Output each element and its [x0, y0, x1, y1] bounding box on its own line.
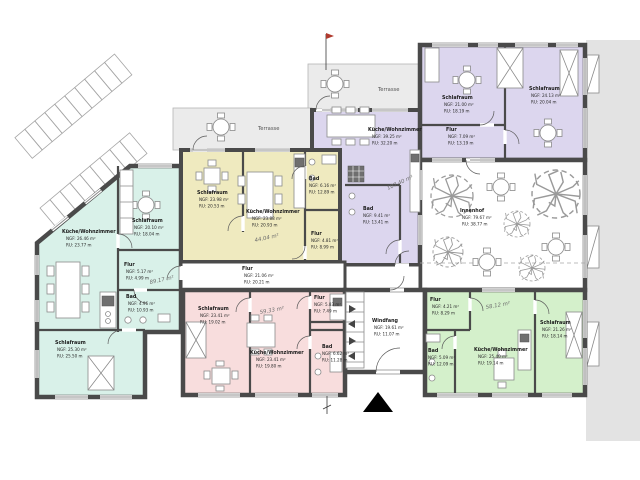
- green-kueche-ngf: NGF: 25.40 m²: [478, 354, 508, 359]
- yellow-bad-ru: RU: 12.89 m: [309, 190, 335, 195]
- green-schlafraum-ru: RU: 18.14 m: [542, 334, 568, 339]
- pink-flur-ru: RU: 7.49 m: [314, 309, 337, 314]
- green-flur-ru: RU: 8.29 m: [432, 311, 455, 316]
- lavender-kueche-ngf: NGF: 39.25 m²: [372, 134, 402, 139]
- lavender-schlafraum-links-ngf: NGF: 21.00 m²: [444, 102, 474, 107]
- mint-schlafraum-unten-ru: RU: 25.50 m: [57, 354, 83, 359]
- yellow-bad-name: Bad: [309, 176, 320, 182]
- yellow-schlafraum-ngf: NGF: 23.98 m²: [199, 197, 229, 202]
- innenhof-name: Innenhof: [460, 208, 485, 214]
- mint-schlafraum-oben-name: Schlafraum: [132, 218, 163, 224]
- pink-kueche-name: Küche/Wohnzimmer: [250, 350, 304, 356]
- lavender-bad-ngf: NGF: 9.41 m²: [363, 213, 390, 218]
- section-marker-bottom: [323, 396, 331, 414]
- lavender-schlafraum-rechts-ngf: NGF: 24.13 m²: [531, 93, 561, 98]
- yellow-kueche-name: Küche/Wohnzimmer: [246, 209, 300, 215]
- lavender-kueche-name: Küche/Wohnzimmer: [368, 127, 422, 133]
- floor-plan-svg: Küche/Wohnzimmer NGF: 26.46 m² RU: 23.77…: [0, 0, 640, 480]
- yellow-flur-ru: RU: 8.99 m: [311, 245, 334, 250]
- lavender-flur-ru: RU: 13.19 m: [448, 141, 474, 146]
- windfang-ru: RU: 11.07 m: [374, 332, 400, 337]
- yellow-schlafraum-ru: RU: 20.53 m: [199, 204, 225, 209]
- windfang-stair: [346, 292, 364, 368]
- green-kueche-name: Küche/Wohnzimmer: [474, 347, 528, 353]
- lavender-flur-name: Flur: [446, 127, 457, 133]
- lavender-schlafraum-links-name: Schlafraum: [442, 95, 473, 101]
- pink-schlafraum-ru: RU: 19.02 m: [200, 320, 226, 325]
- lavender-bad-ru: RU: 13.41 m: [363, 220, 389, 225]
- green-bad-ngf: NGF: 5.09 m²: [428, 355, 455, 360]
- mint-schlafraum-oben-ru: RU: 18.04 m: [134, 232, 160, 237]
- lavender-flur-ngf: NGF: 7.09 m²: [448, 134, 475, 139]
- yellow-bad-ngf: NGF: 6.16 m²: [309, 183, 336, 188]
- central-flur-name: Flur: [242, 266, 253, 272]
- yellow-kueche-ngf: NGF: 23.88 m²: [252, 216, 282, 221]
- green-schlafraum-ngf: NGF: 21.26 m²: [542, 327, 572, 332]
- central-flur-ngf: NGF: 21.06 m²: [244, 273, 274, 278]
- pink-kueche-ru: RU: 19.80 m: [256, 364, 282, 369]
- yellow-kueche-ru: RU: 20.93 m: [252, 223, 278, 228]
- lavender-schlafraum-rechts-ru: RU: 20.04 m: [531, 100, 557, 105]
- innenhof-ru: RU: 38.77 m: [462, 222, 488, 227]
- mint-schlafraum-oben-ngf: NGF: 20.10 m²: [134, 225, 164, 230]
- mint-kueche-ngf: NGF: 26.46 m²: [66, 236, 96, 241]
- pink-flur-ngf: NGF: 5.83 m²: [314, 302, 341, 307]
- green-bad-ru: RU: 12.09 m: [428, 362, 454, 367]
- terrace-lower: [173, 108, 312, 150]
- green-flur-name: Flur: [430, 297, 441, 303]
- pink-bad-ru: RU: 11.28 m: [322, 358, 348, 363]
- yellow-flur-name: Flur: [311, 231, 322, 237]
- windfang-name: Windfang: [372, 318, 399, 324]
- mint-kueche-name: Küche/Wohnzimmer: [62, 229, 116, 235]
- terrace-upper-label: Terrasse: [377, 87, 399, 93]
- entry-corridor: [345, 265, 420, 290]
- lavender-bad-name: Bad: [363, 206, 374, 212]
- windfang-ngf: NGF: 19.61 m²: [374, 325, 404, 330]
- mint-bad-ru: RU: 10.93 m: [128, 308, 154, 313]
- innenhof-ngf: NGF: 79.67 m²: [462, 215, 492, 220]
- pink-bad-ngf: NGF: 6.62 m²: [322, 351, 349, 356]
- mint-flur-ngf: NGF: 5.17 m²: [126, 269, 153, 274]
- mint-kueche-ru: RU: 23.77 m: [66, 243, 92, 248]
- green-bad-name: Bad: [428, 348, 439, 354]
- north-arrow: [363, 392, 393, 412]
- central-flur-ru: RU: 20.21 m: [244, 280, 270, 285]
- terrace-lower-label: Terrasse: [257, 126, 279, 132]
- green-flur-ngf: NGF: 4.21 m²: [432, 304, 459, 309]
- mint-schlafraum-unten-ngf: NGF: 25.30 m²: [57, 347, 87, 352]
- pink-flur-name: Flur: [314, 295, 325, 301]
- pink-bad-name: Bad: [322, 344, 333, 350]
- floor-plan-page: Küche/Wohnzimmer NGF: 26.46 m² RU: 23.77…: [0, 0, 640, 480]
- mint-flur-name: Flur: [124, 262, 135, 268]
- mint-bad-ngf: NGF: 4.96 m²: [128, 301, 155, 306]
- lavender-schlafraum-links-ru: RU: 18.19 m: [444, 109, 470, 114]
- lavender-schlafraum-rechts-name: Schlafraum: [529, 86, 560, 92]
- lavender-kueche-ru: RU: 32.20 m: [372, 141, 398, 146]
- mint-schlafraum-unten-name: Schlafraum: [55, 340, 86, 346]
- yellow-schlafraum-name: Schlafraum: [197, 190, 228, 196]
- pink-kueche-ngf: NGF: 23.41 m²: [256, 357, 286, 362]
- yellow-flur-ngf: NGF: 4.81 m²: [311, 238, 338, 243]
- green-schlafraum-name: Schlafraum: [540, 320, 571, 326]
- mint-bad-name: Bad: [126, 294, 137, 300]
- pink-schlafraum-name: Schlafraum: [198, 306, 229, 312]
- mint-flur-ru: RU: 4.99 m: [126, 276, 149, 281]
- green-kueche-ru: RU: 19.14 m: [478, 361, 504, 366]
- pink-schlafraum-ngf: NGF: 23.41 m²: [200, 313, 230, 318]
